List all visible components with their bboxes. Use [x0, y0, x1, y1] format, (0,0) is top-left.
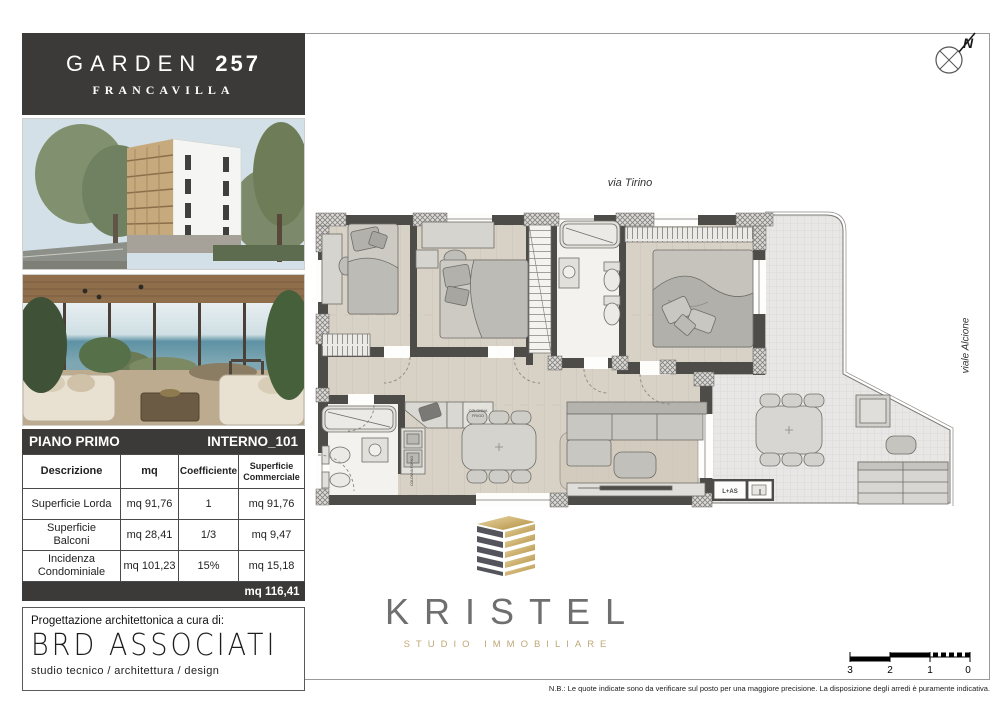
scale-1: 1 [927, 665, 933, 676]
project-title: GARDEN 257 [66, 51, 261, 77]
fridge-label-1: COLONNA [469, 409, 488, 413]
col-coefficiente: Coefficiente [179, 455, 239, 488]
architect-box: Progettazione architettonica a cura di: … [22, 607, 305, 691]
table-row: Incidenza Condominiale mq 101,23 15% mq … [23, 551, 304, 582]
interior-photo-art [23, 275, 304, 425]
project-city: FRANCAVILLA [92, 83, 234, 98]
north-compass-icon: N [925, 28, 985, 86]
agency-tagline: STUDIO IMMOBILIARE [330, 639, 680, 650]
project-title-number: 257 [215, 51, 261, 76]
cell-comm: mq 9,47 [239, 520, 304, 550]
building-photo-art [23, 119, 304, 269]
surface-table: Descrizione mq Coefficiente Superficie C… [22, 454, 305, 582]
corridor-cabinet [322, 334, 370, 356]
fridge-label-2: FRIGO [472, 414, 484, 418]
left-panel: GARDEN 257 FRANCAVILLA [22, 33, 305, 691]
street-label-right: viale Alcione [961, 306, 972, 386]
table-header-row: Descrizione mq Coefficiente Superficie C… [23, 455, 304, 489]
floor-label: PIANO PRIMO [29, 434, 120, 449]
disclaimer-note: N.B.: Le quote indicate sono da verifica… [290, 684, 990, 693]
architect-tagline: studio tecnico / architettura / design [31, 665, 296, 677]
scale-bar: 3 2 1 0 [845, 646, 975, 676]
agency-logo: KRISTEL STUDIO IMMOBILIARE [330, 510, 680, 650]
total-commercial-area: mq 116,41 [239, 582, 305, 601]
interior-photo [22, 274, 305, 426]
cell-mq: mq 28,41 [121, 520, 179, 550]
agency-logo-icon [457, 510, 553, 578]
cell-mq: mq 101,23 [121, 551, 179, 581]
table-row: Superficie Balconi mq 28,41 1/3 mq 9,47 [23, 520, 304, 551]
col-descrizione: Descrizione [23, 455, 121, 488]
floor-plan: COLONNA FRIGO COLONNA FORNO L+AS [310, 202, 960, 512]
agency-name: KRISTEL [330, 591, 680, 633]
cell-desc: Incidenza Condominiale [30, 553, 114, 578]
cell-desc: Superficie Lorda [30, 498, 114, 511]
floor-unit-bar: PIANO PRIMO INTERNO_101 [22, 429, 305, 454]
project-title-light: GARDEN [66, 51, 202, 76]
cell-comm: mq 91,76 [239, 489, 304, 519]
unit-label: INTERNO_101 [207, 434, 298, 449]
master-wardrobe [625, 227, 753, 242]
cell-desc: Superficie Balconi [30, 522, 114, 547]
col-mq: mq [121, 455, 179, 488]
scale-3: 3 [847, 665, 853, 676]
project-header: GARDEN 257 FRANCAVILLA [22, 33, 305, 115]
street-label-top: via Tirino [560, 177, 700, 189]
scale-2: 2 [887, 665, 893, 676]
scale-0: 0 [965, 665, 971, 676]
oven-label: COLONNA FORNO [410, 456, 414, 486]
cell-coef: 1 [179, 489, 239, 519]
building-photo [22, 118, 305, 270]
architect-logo: BRD ASSOCIATI [31, 628, 296, 663]
cell-comm: mq 15,18 [239, 551, 304, 581]
laundry-label: L+AS [722, 489, 738, 495]
table-total-bar: mq 116,41 [22, 582, 305, 601]
architect-intro: Progettazione architettonica a cura di: [31, 615, 296, 627]
table-row: Superficie Lorda mq 91,76 1 mq 91,76 [23, 489, 304, 520]
col-superficie-commerciale: Superficie Commerciale [239, 455, 304, 488]
cell-coef: 1/3 [179, 520, 239, 550]
svg-text:N: N [963, 35, 974, 51]
cell-mq: mq 91,76 [121, 489, 179, 519]
cell-coef: 15% [179, 551, 239, 581]
